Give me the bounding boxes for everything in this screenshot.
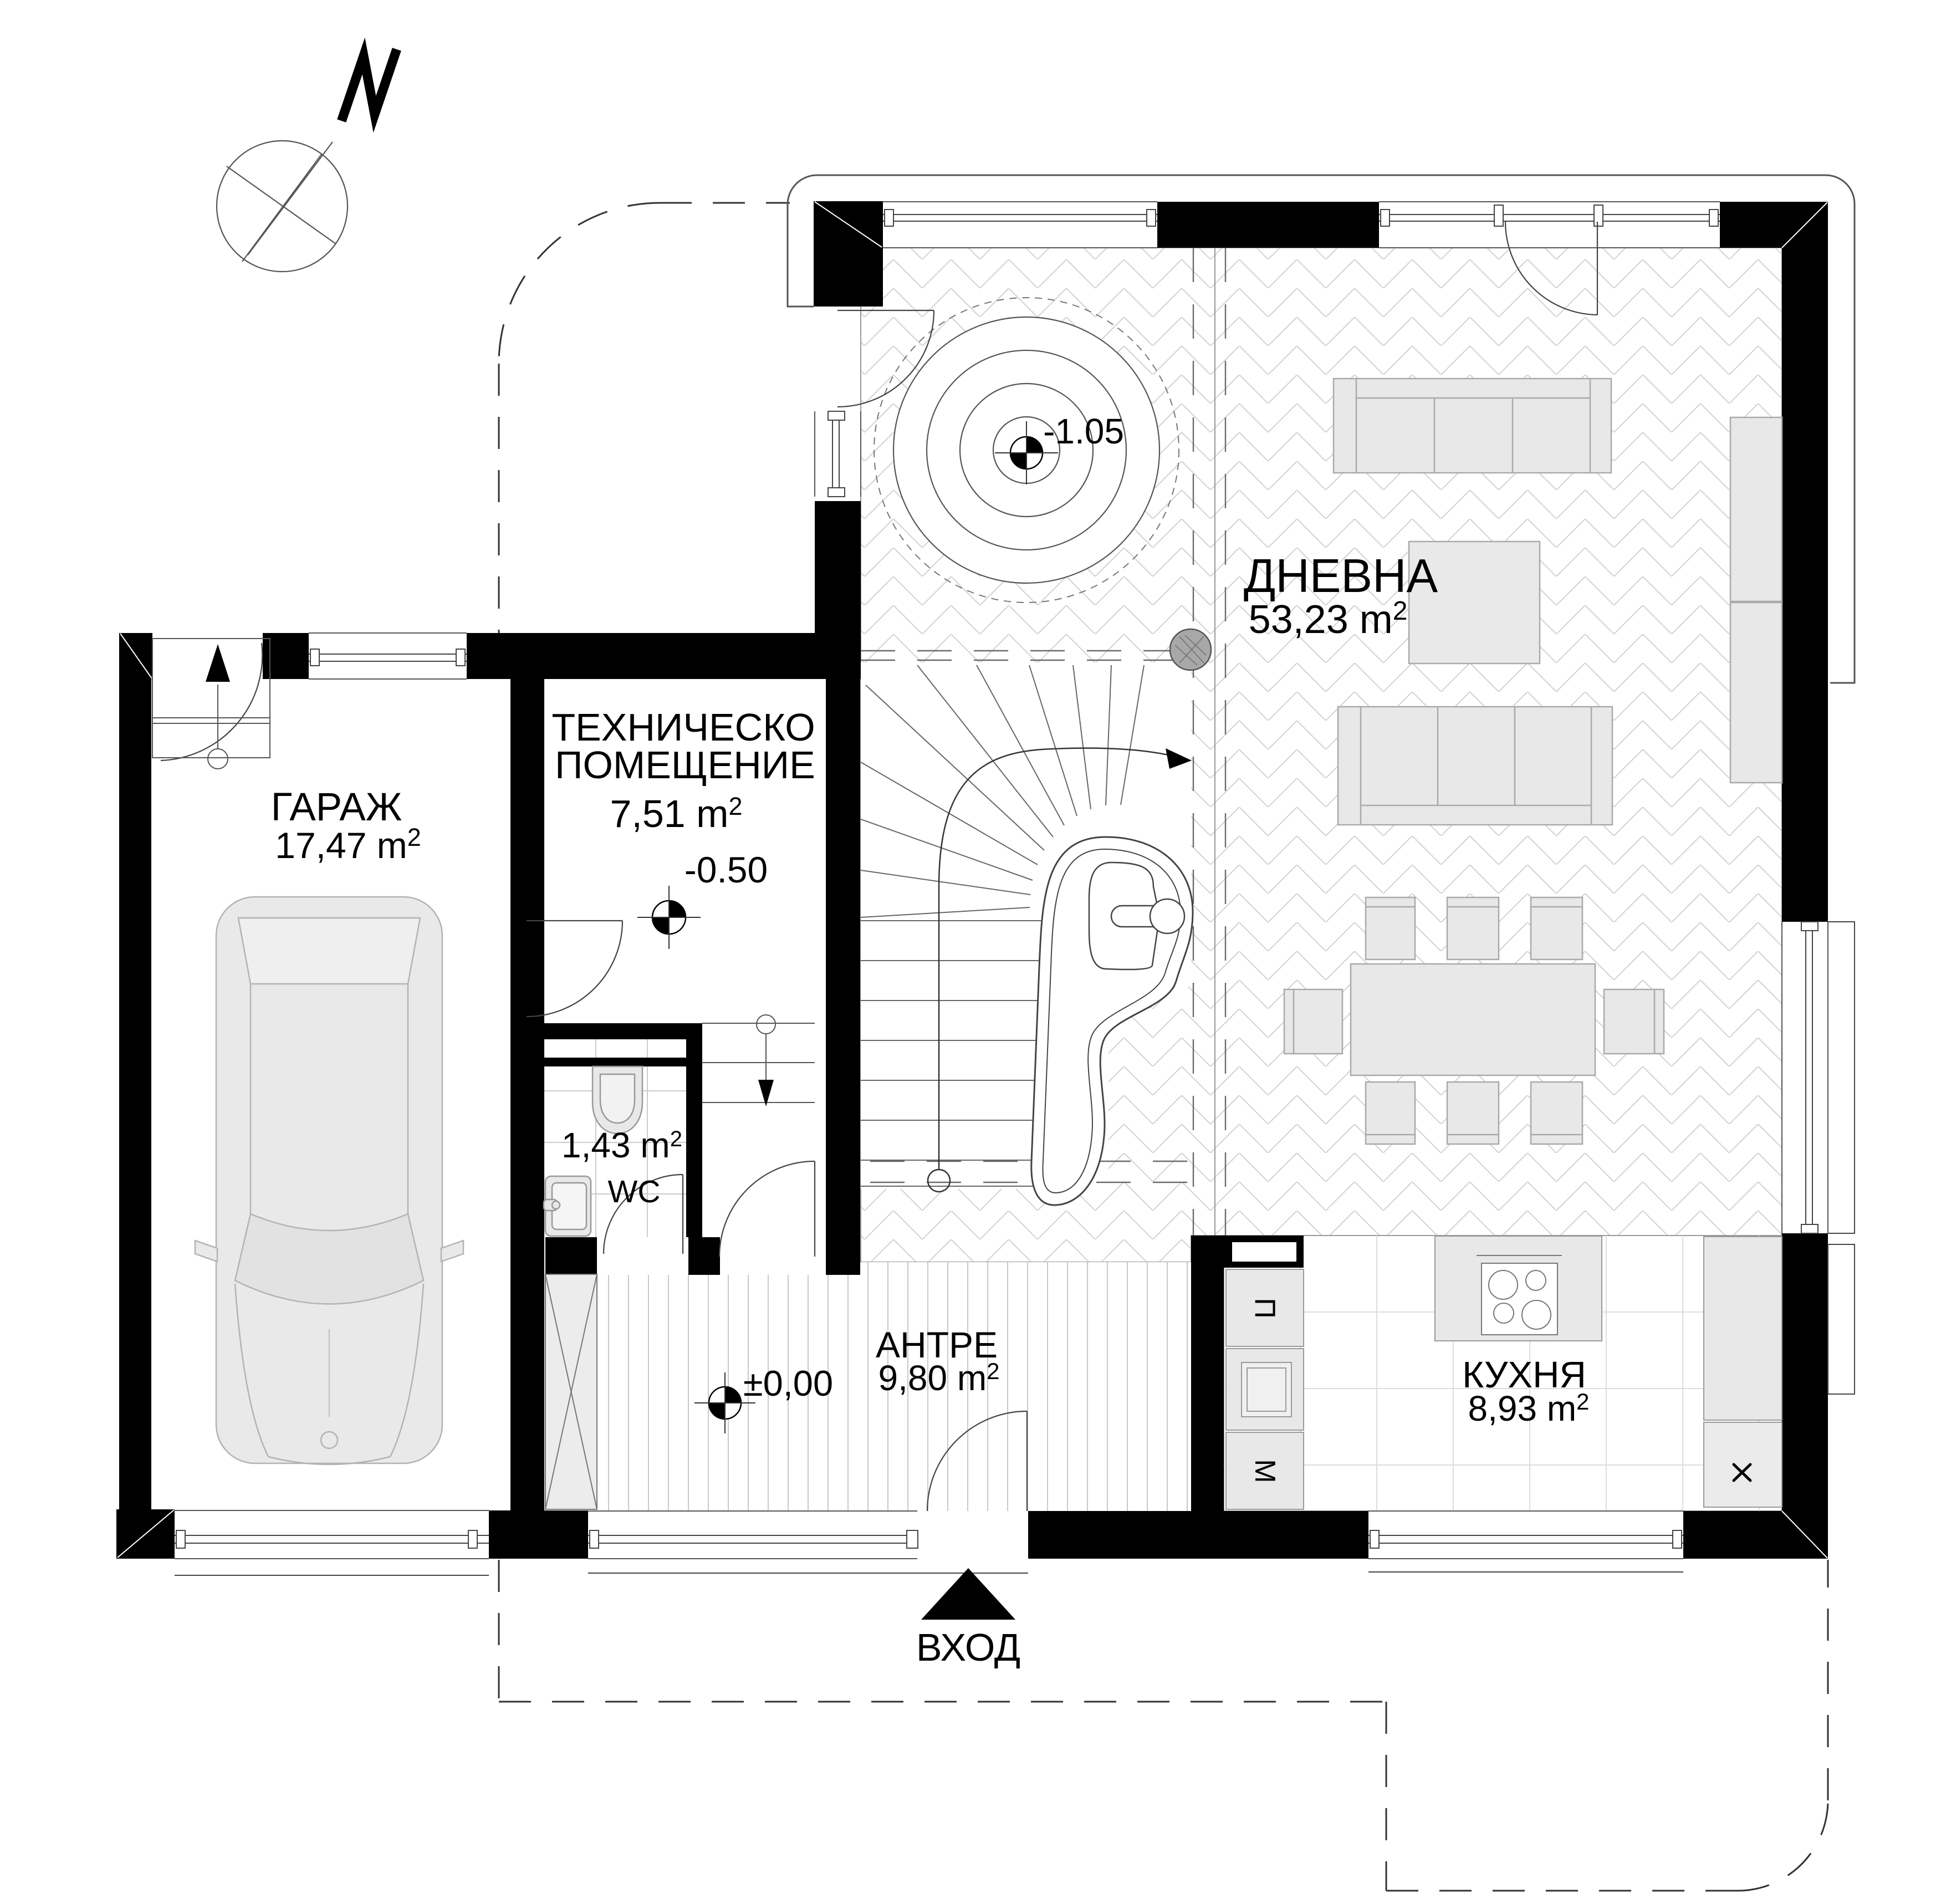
svg-text:ПОМЕЩЕНИЕ: ПОМЕЩЕНИЕ bbox=[555, 743, 815, 787]
svg-text:±0,00: ±0,00 bbox=[743, 1363, 833, 1403]
svg-text:9,80 m2: 9,80 m2 bbox=[878, 1358, 999, 1398]
svg-text:ГАРАЖ: ГАРАЖ bbox=[271, 785, 402, 829]
svg-text:ДНЕВНА: ДНЕВНА bbox=[1244, 550, 1438, 603]
svg-text:-0.50: -0.50 bbox=[685, 849, 768, 890]
svg-text:-1.05: -1.05 bbox=[1043, 411, 1124, 451]
svg-text:8,93 m2: 8,93 m2 bbox=[1468, 1389, 1589, 1428]
svg-text:ВХОД: ВХОД bbox=[916, 1626, 1020, 1669]
svg-text:7,51 m2: 7,51 m2 bbox=[610, 792, 742, 835]
svg-text:ТЕХНИЧЕСКО: ТЕХНИЧЕСКО bbox=[551, 706, 815, 749]
svg-text:1,43 m2: 1,43 m2 bbox=[561, 1125, 682, 1165]
svg-text:П: П bbox=[1249, 1298, 1281, 1318]
svg-text:М: М bbox=[1249, 1459, 1281, 1483]
svg-text:53,23 m2: 53,23 m2 bbox=[1249, 596, 1408, 642]
svg-text:17,47 m2: 17,47 m2 bbox=[275, 823, 421, 866]
svg-text:WC: WC bbox=[608, 1174, 661, 1209]
